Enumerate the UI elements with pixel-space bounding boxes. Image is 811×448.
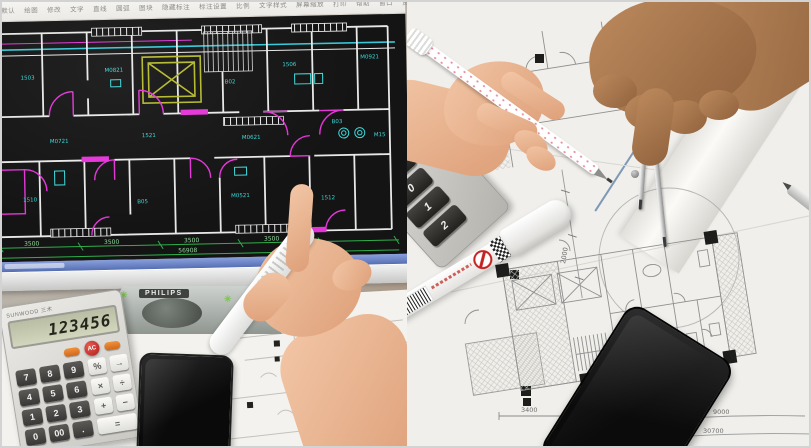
- svg-text:3500: 3500: [264, 235, 280, 242]
- cad-canvas: 1503 M0821 B02 1506 M0921 M0721 1521 M06…: [2, 14, 407, 263]
- cad-menu-item: 文字: [70, 3, 84, 13]
- status-text-smudge: [4, 263, 64, 269]
- calculator-key: 1: [21, 407, 43, 426]
- svg-text:M0621: M0621: [242, 135, 261, 141]
- monitor-brand-badge: PHILIPS: [139, 289, 189, 298]
- calculator-key: −: [115, 393, 135, 412]
- cad-menu-item: 直线: [93, 2, 107, 12]
- svg-text:1503: 1503: [21, 75, 36, 81]
- svg-text:M0921: M0921: [360, 54, 379, 60]
- calculator-key: ×: [90, 377, 110, 396]
- smartphone: [136, 352, 234, 448]
- svg-text:1512: 1512: [321, 195, 335, 201]
- calculator-key: 6: [66, 380, 88, 399]
- cad-menu-item: 标注设置: [199, 2, 227, 11]
- svg-text:B03: B03: [331, 119, 342, 125]
- calculator-key: 2: [45, 404, 67, 423]
- calculator-display-value: 123456: [47, 310, 113, 339]
- compass-screw: [631, 170, 639, 178]
- calculator-ac-key: AC: [83, 340, 100, 357]
- calculator-key: 4: [18, 388, 40, 407]
- calculator-key: 0: [24, 427, 46, 446]
- cad-menu-item: 文字样式: [259, 2, 287, 9]
- svg-text:3500: 3500: [24, 240, 40, 247]
- monitor-stand-hub: [142, 298, 202, 328]
- svg-text:M0821: M0821: [104, 68, 123, 74]
- photo-composite: 默认绘图修改文字直线圆弧图块隐藏标注标注设置比例文字样式屏幕缩放打印帮助窗口资料: [0, 0, 811, 448]
- cad-floorplan-drawing: 1503 M0821 B02 1506 M0921 M0721 1521 M06…: [2, 14, 401, 262]
- svg-text:9000: 9000: [713, 408, 730, 416]
- calculator-key: .: [72, 420, 94, 439]
- svg-text:3400: 3400: [521, 406, 538, 414]
- calculator-key: →: [109, 353, 129, 372]
- calculator-key: 7: [15, 368, 37, 387]
- svg-text:B05: B05: [137, 199, 148, 205]
- svg-text:M0721: M0721: [50, 139, 69, 145]
- knuckle: [699, 90, 739, 120]
- left-photo-panel: 默认绘图修改文字直线圆弧图块隐藏标注标注设置比例文字样式屏幕缩放打印帮助窗口资料: [2, 2, 407, 448]
- calculator-key: =: [97, 413, 139, 435]
- calculator-key: ÷: [112, 373, 132, 392]
- calculator-function-key: [104, 340, 121, 350]
- calculator-function-key: [63, 346, 80, 356]
- svg-text:1510: 1510: [23, 197, 38, 203]
- cad-menu-item: 修改: [47, 3, 61, 13]
- calculator-key: 8: [39, 364, 61, 383]
- calculator-operator-keys: %→×÷+−=: [87, 353, 138, 434]
- cad-menu-item: 帮助: [356, 2, 370, 7]
- calculator-key: 5: [42, 384, 64, 403]
- calculator: SUNWOOD 三木 123456 AC 789456123000. %→×÷+…: [2, 289, 144, 448]
- svg-text:M15: M15: [374, 132, 386, 138]
- svg-text:56908: 56908: [178, 247, 197, 254]
- cad-menu-item: 圆弧: [116, 2, 130, 12]
- right-photo-panel: 3400 9000 30700 2000 2000 0012: [407, 2, 811, 448]
- cad-menu-item: 绘图: [24, 4, 38, 14]
- cad-elevator-highlight: [142, 56, 201, 103]
- cad-menu-item: 图块: [139, 2, 153, 12]
- cad-menu-item: 屏幕缩放: [296, 2, 324, 8]
- cad-room-labels: 1503 M0821 B02 1506 M0921 M0721 1521 M06…: [20, 54, 387, 208]
- svg-text:1506: 1506: [282, 62, 297, 68]
- cad-menu-item: 窗口: [379, 2, 393, 7]
- calculator-number-keys: 789456123000.: [15, 360, 94, 446]
- plant-reflection-icon: ✳: [224, 294, 232, 305]
- calculator-key: 9: [62, 360, 84, 379]
- calculator-key: 3: [69, 400, 91, 419]
- cad-menu-item: 比例: [236, 2, 250, 10]
- cad-menu-item: 隐藏标注: [162, 2, 190, 11]
- calculator-key: +: [93, 396, 113, 415]
- cad-menu-item: 打印: [333, 2, 347, 8]
- calculator-key: %: [87, 357, 107, 376]
- svg-text:M0521: M0521: [231, 193, 250, 199]
- calculator-key: 00: [48, 423, 70, 442]
- svg-text:B02: B02: [225, 79, 236, 85]
- svg-text:1521: 1521: [142, 133, 156, 139]
- marker-logo-icon: [470, 246, 496, 272]
- svg-text:3500: 3500: [184, 237, 200, 244]
- cad-menu-item: 默认: [2, 4, 15, 14]
- cad-walls: [2, 26, 392, 237]
- svg-text:3500: 3500: [104, 239, 120, 246]
- svg-text:2000: 2000: [559, 247, 570, 265]
- cad-fixtures: [53, 73, 366, 185]
- svg-text:30700: 30700: [703, 427, 724, 435]
